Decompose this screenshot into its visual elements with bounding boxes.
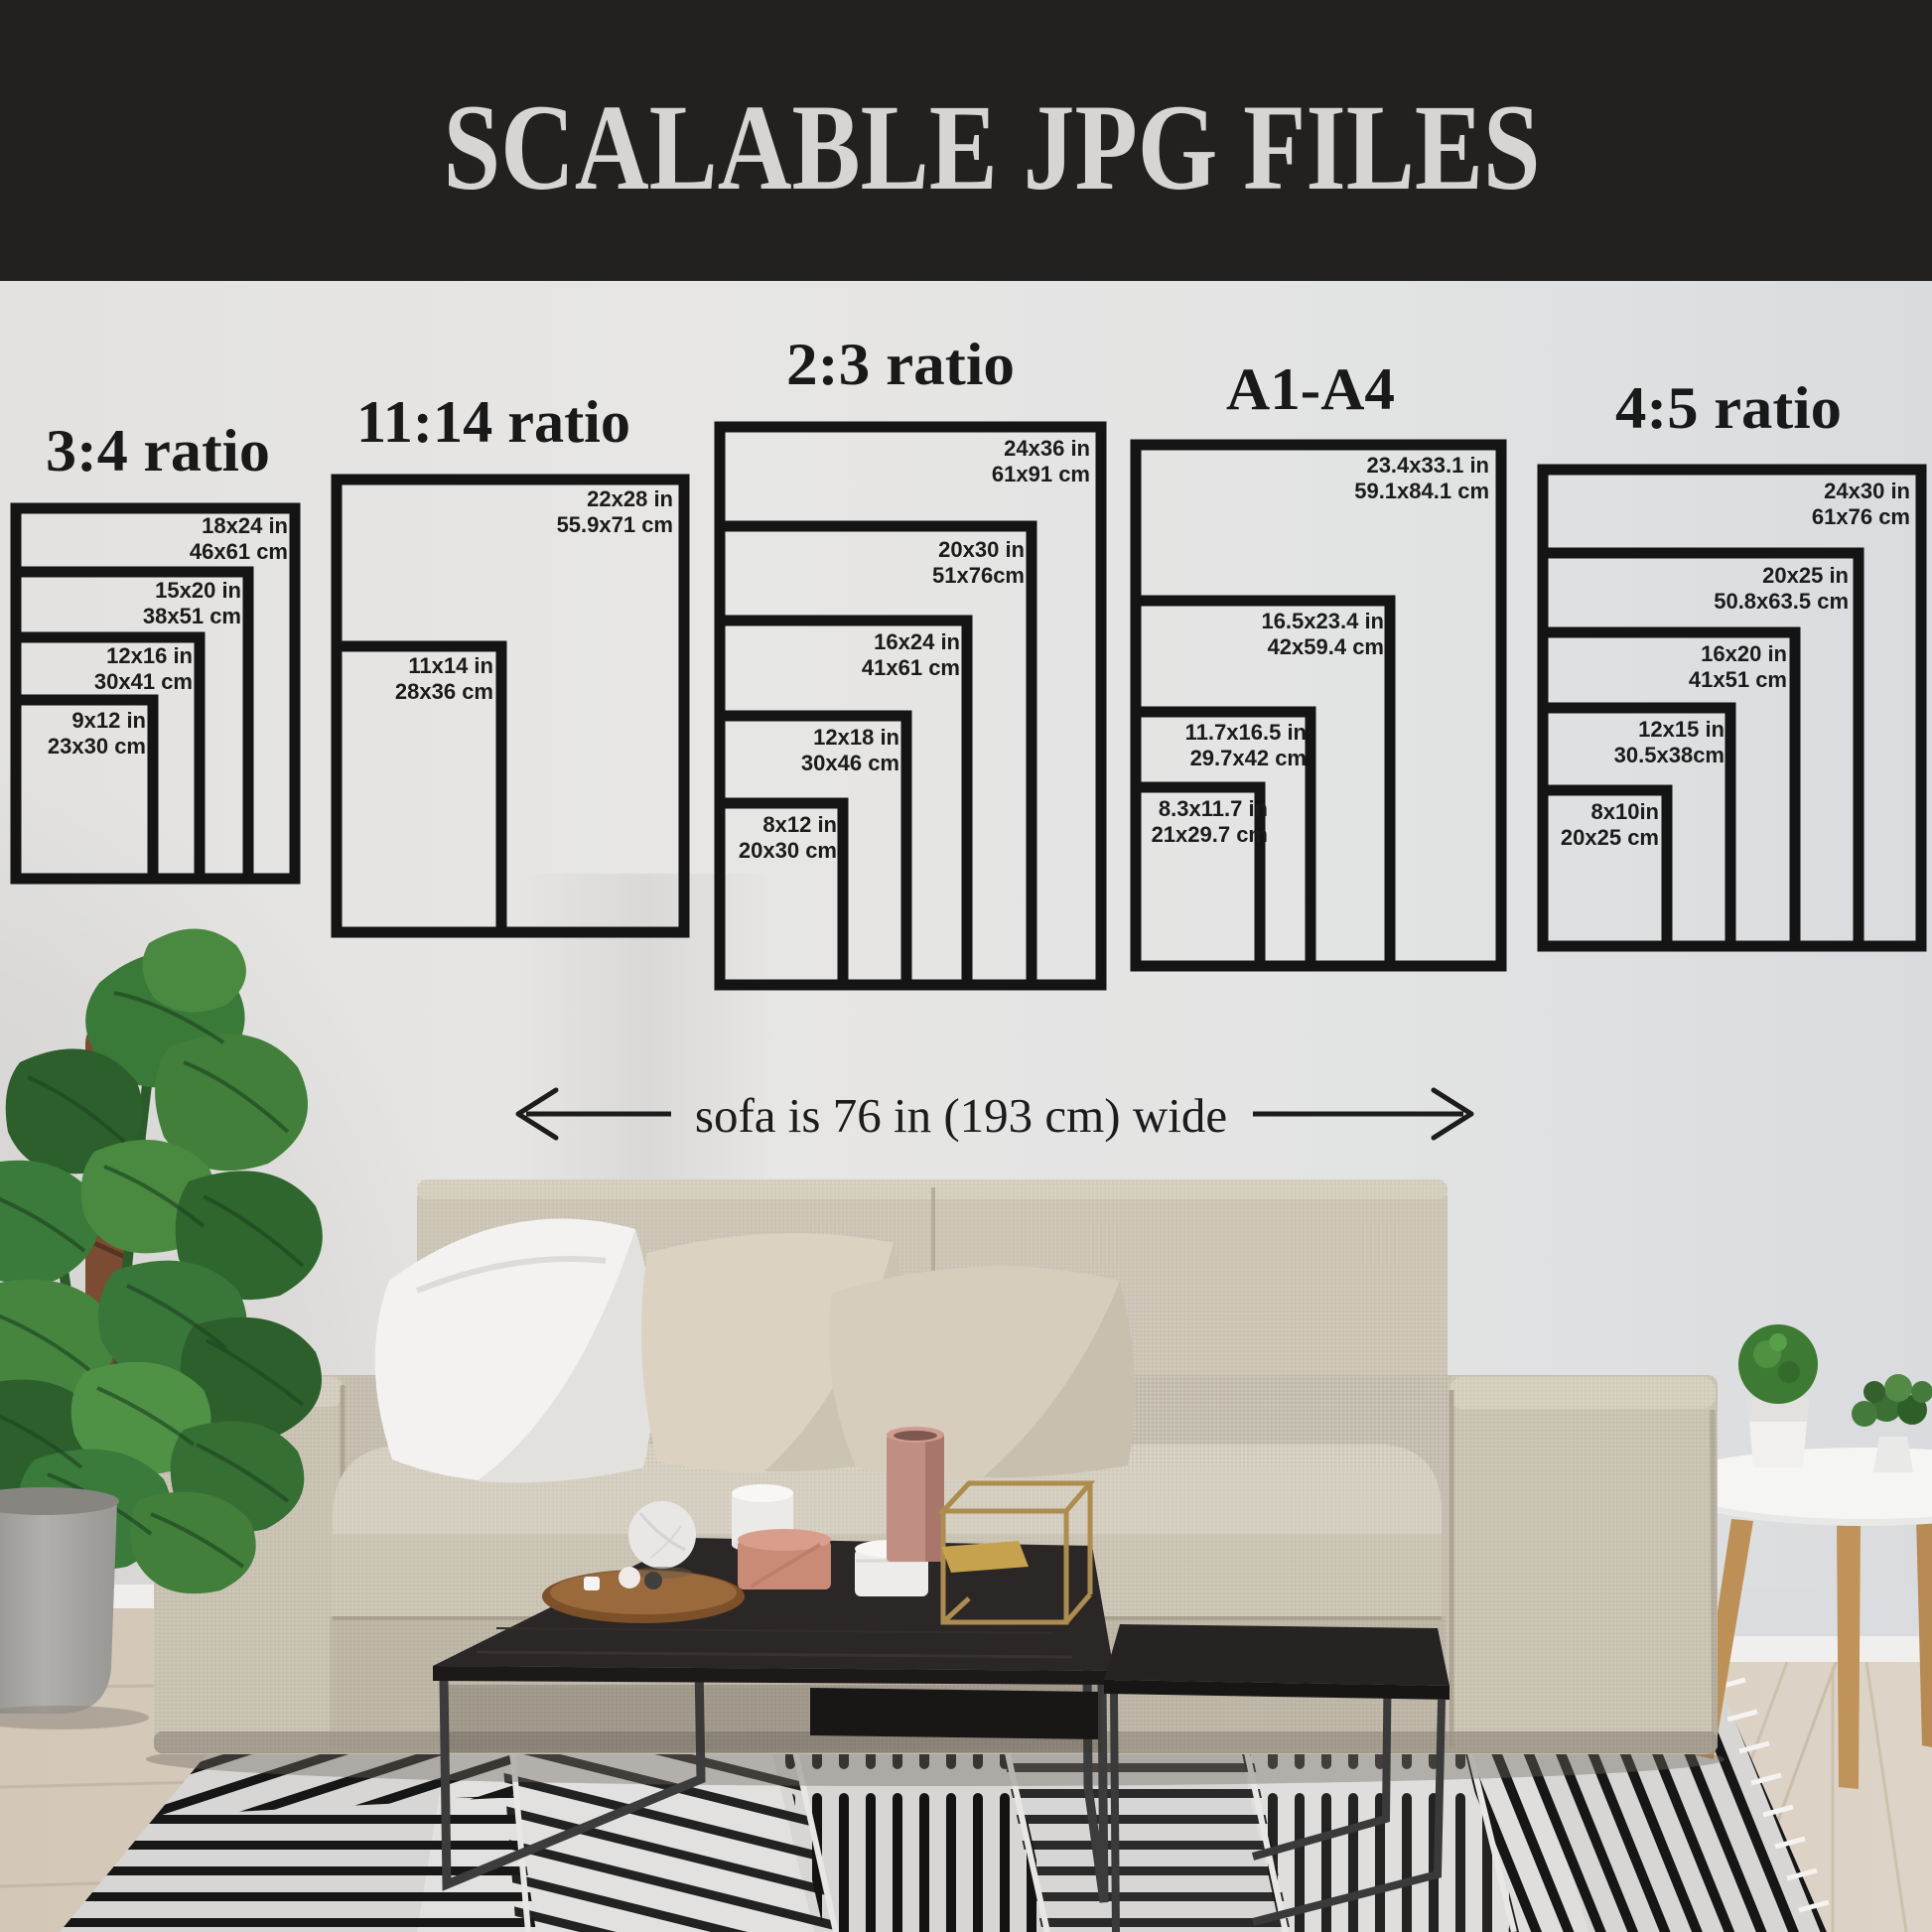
svg-text:20x30 cm: 20x30 cm xyxy=(739,838,837,863)
svg-text:8x12 in: 8x12 in xyxy=(762,812,837,837)
svg-text:9x12 in: 9x12 in xyxy=(71,708,146,733)
svg-text:46x61 cm: 46x61 cm xyxy=(190,539,288,564)
svg-text:20x25 cm: 20x25 cm xyxy=(1561,825,1659,850)
svg-text:20x25 in: 20x25 in xyxy=(1762,563,1849,588)
svg-text:2:3 ratio: 2:3 ratio xyxy=(786,332,1015,397)
svg-text:SCALABLE JPG FILES: SCALABLE JPG FILES xyxy=(444,79,1541,215)
svg-text:51x76cm: 51x76cm xyxy=(932,563,1025,588)
svg-text:41x51 cm: 41x51 cm xyxy=(1689,667,1787,692)
svg-text:A1-A4: A1-A4 xyxy=(1226,356,1395,422)
svg-text:42x59.4 cm: 42x59.4 cm xyxy=(1268,634,1384,659)
svg-text:11:14 ratio: 11:14 ratio xyxy=(356,389,630,455)
svg-text:41x61 cm: 41x61 cm xyxy=(862,655,960,680)
svg-text:59.1x84.1 cm: 59.1x84.1 cm xyxy=(1354,479,1489,503)
svg-text:16x24 in: 16x24 in xyxy=(874,629,960,654)
svg-text:30x41 cm: 30x41 cm xyxy=(94,669,193,694)
svg-text:30x46 cm: 30x46 cm xyxy=(801,751,899,775)
svg-text:16.5x23.4 in: 16.5x23.4 in xyxy=(1261,609,1384,633)
svg-text:8x10in: 8x10in xyxy=(1591,799,1660,824)
svg-text:61x76 cm: 61x76 cm xyxy=(1812,504,1910,529)
svg-text:11x14 in: 11x14 in xyxy=(408,653,493,678)
svg-text:55.9x71 cm: 55.9x71 cm xyxy=(557,512,673,537)
svg-text:38x51 cm: 38x51 cm xyxy=(143,604,241,628)
svg-text:15x20 in: 15x20 in xyxy=(155,578,241,603)
svg-text:24x30 in: 24x30 in xyxy=(1824,479,1910,503)
svg-text:21x29.7 cm: 21x29.7 cm xyxy=(1152,822,1268,847)
svg-text:18x24 in: 18x24 in xyxy=(202,513,288,538)
svg-text:3:4 ratio: 3:4 ratio xyxy=(46,418,270,483)
svg-text:28x36 cm: 28x36 cm xyxy=(395,679,493,704)
svg-text:50.8x63.5 cm: 50.8x63.5 cm xyxy=(1714,589,1849,614)
svg-text:23.4x33.1 in: 23.4x33.1 in xyxy=(1366,453,1489,478)
svg-text:12x15 in: 12x15 in xyxy=(1638,717,1725,742)
svg-text:8.3x11.7 in: 8.3x11.7 in xyxy=(1159,796,1268,821)
svg-text:23x30 cm: 23x30 cm xyxy=(48,734,146,759)
svg-text:11.7x16.5 in: 11.7x16.5 in xyxy=(1185,720,1307,745)
svg-text:61x91 cm: 61x91 cm xyxy=(992,462,1090,486)
svg-text:29.7x42 cm: 29.7x42 cm xyxy=(1190,746,1307,770)
svg-text:4:5 ratio: 4:5 ratio xyxy=(1615,375,1842,441)
svg-text:22x28 in: 22x28 in xyxy=(587,486,673,511)
svg-text:24x36 in: 24x36 in xyxy=(1004,436,1090,461)
svg-text:12x18 in: 12x18 in xyxy=(813,725,899,750)
svg-text:30.5x38cm: 30.5x38cm xyxy=(1614,743,1725,767)
svg-text:16x20 in: 16x20 in xyxy=(1701,641,1787,666)
svg-text:12x16 in: 12x16 in xyxy=(106,643,193,668)
svg-text:sofa is 76 in (193 cm) wide: sofa is 76 in (193 cm) wide xyxy=(695,1088,1227,1143)
svg-text:20x30 in: 20x30 in xyxy=(938,537,1025,562)
